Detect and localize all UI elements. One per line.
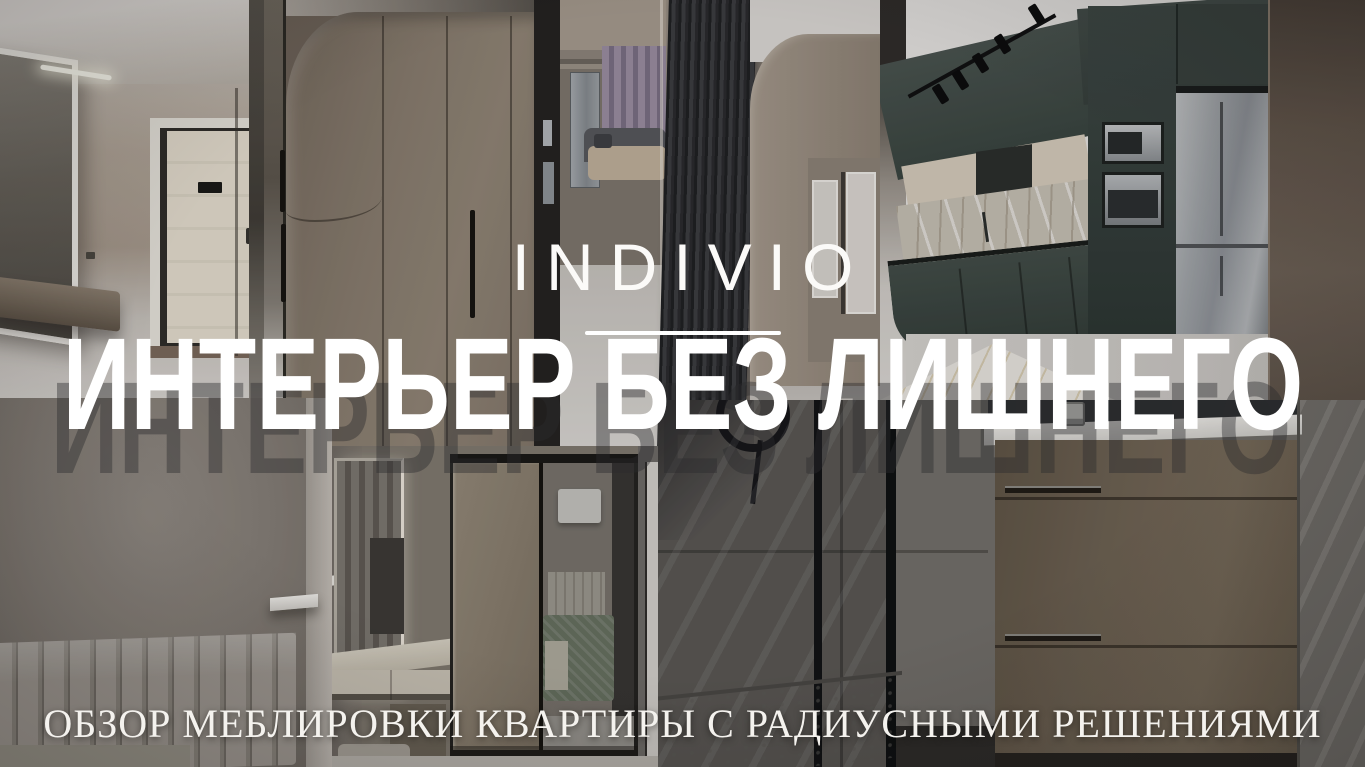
video-thumbnail: ИНТЕРЬЕР БЕЗ ЛИШНЕГО INDIVIO ИНТЕРЬЕР БЕ… [0, 0, 1365, 767]
subtitle: ОБЗОР МЕБЛИРОВКИ КВАРТИРЫ С РАДИУСНЫМИ Р… [0, 702, 1365, 746]
brand-logo-text: INDIVIO [0, 234, 1365, 300]
brand-underline [585, 331, 781, 335]
main-title: ИНТЕРЬЕР БЕЗ ЛИШНЕГО [62, 318, 1303, 449]
